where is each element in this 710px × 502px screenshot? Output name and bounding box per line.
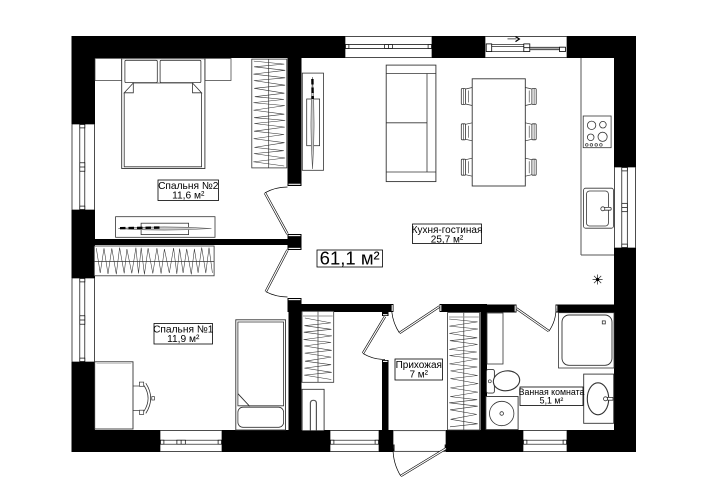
svg-text:25,7 м²: 25,7 м² [431, 235, 464, 246]
svg-text:5,1 м²: 5,1 м² [540, 396, 564, 406]
svg-text:7 м²: 7 м² [409, 370, 428, 381]
svg-text:61,1 м²: 61,1 м² [320, 247, 380, 268]
svg-text:11,9 м²: 11,9 м² [167, 334, 200, 345]
svg-text:11,6 м²: 11,6 м² [172, 191, 205, 202]
